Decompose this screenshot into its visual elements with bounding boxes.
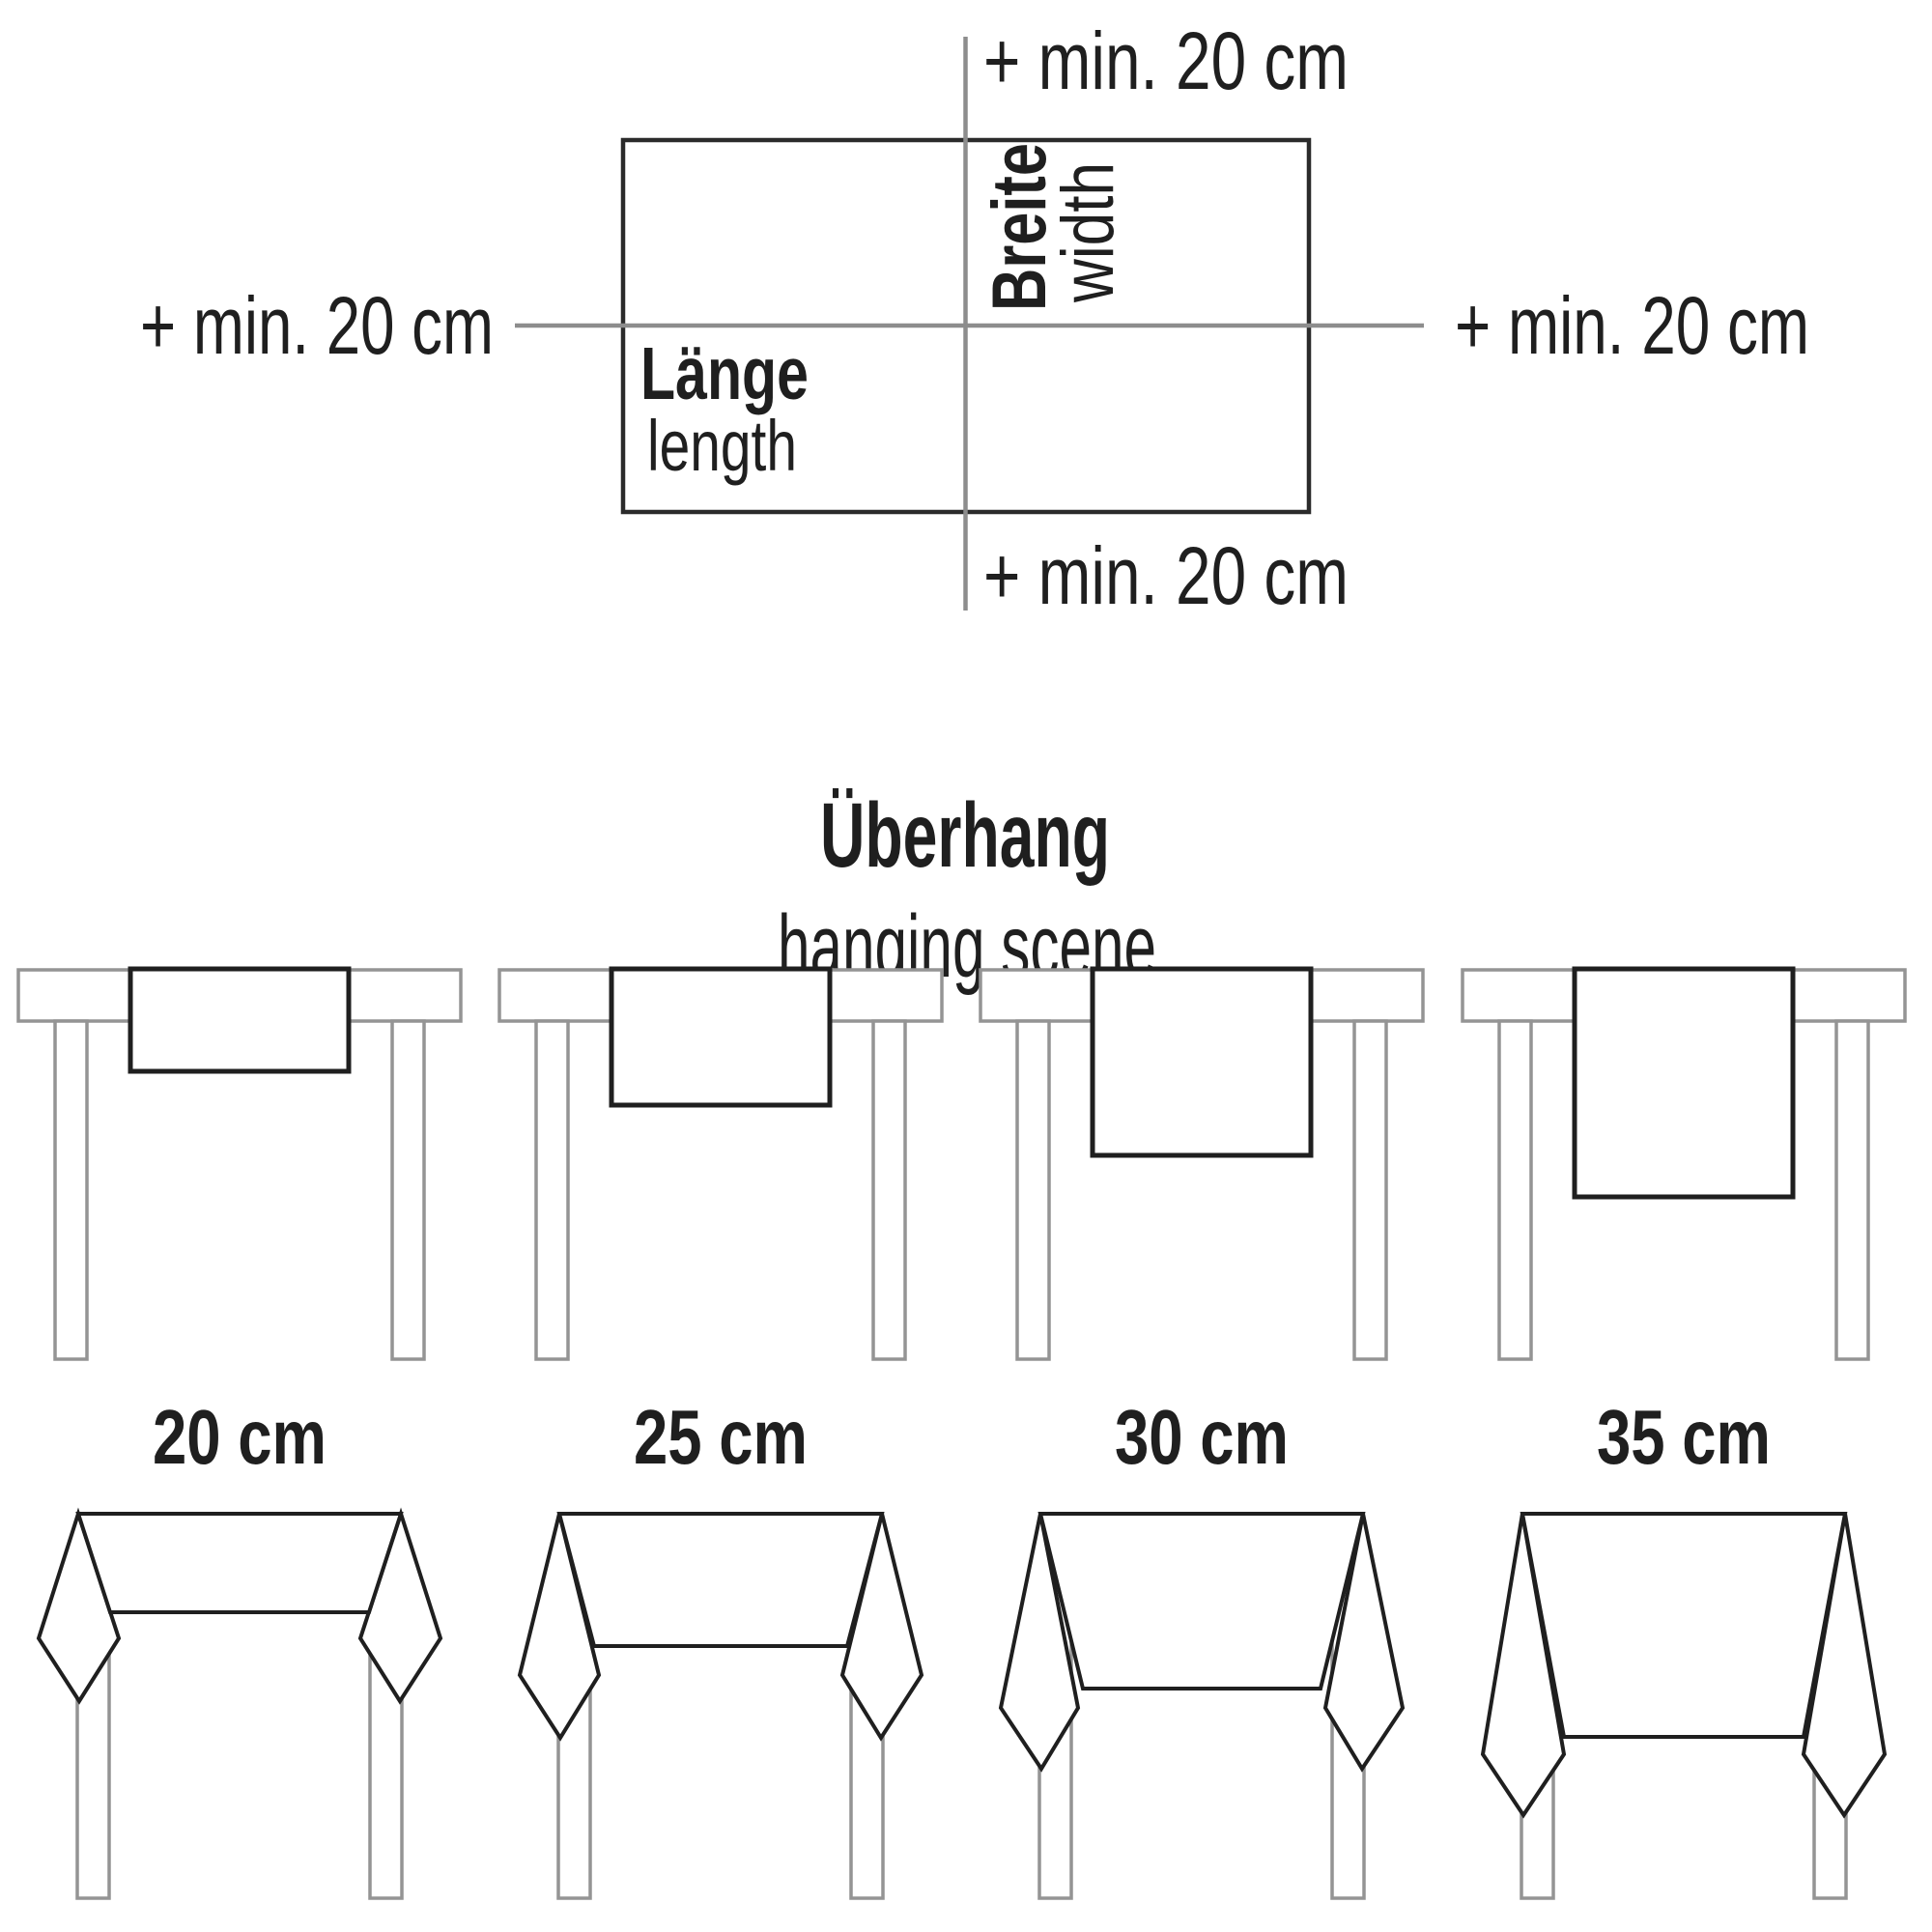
overhang-label-30cm: 30 cm [1115,1394,1289,1480]
cloth-table-20cm [39,1514,440,1898]
cloth-front-panel [559,1514,882,1646]
table-leg-left [536,1021,568,1359]
table-leg-right [873,1021,905,1359]
overhang-labels: 20 cm 25 cm 30 cm 35 cm [153,1394,1771,1480]
overhang-label-35cm: 35 cm [1597,1394,1771,1480]
margin-label-bottom: + min. 20 cm [983,530,1349,621]
table-runner [130,969,349,1071]
cloth-front-panel [1522,1514,1845,1737]
cloth-table-25cm [520,1514,922,1898]
table-leg-left [1499,1021,1531,1359]
overhang-section-title: Überhang hanging scene [778,784,1156,996]
cloth-front-panel [78,1514,401,1612]
table-leg-right [1836,1021,1868,1359]
length-label-de: Länge [640,332,809,415]
length-label-en: length [647,406,797,486]
margin-label-top: + min. 20 cm [983,15,1349,106]
dimension-diagram: + min. 20 cm + min. 20 cm + min. 20 cm +… [140,15,1809,621]
table-runner [1093,969,1311,1155]
runner-table-30cm [980,969,1423,1359]
runner-table-20cm [18,969,461,1359]
width-label-en: width [1047,162,1129,303]
cloth-table-30cm [1001,1514,1403,1898]
margin-label-left: + min. 20 cm [140,280,494,371]
cloth-front-panel [1040,1514,1363,1689]
table-leg-left [55,1021,87,1359]
runner-table-25cm [499,969,942,1359]
table-runner [1575,969,1793,1197]
tablecloth-measurement-diagram: + min. 20 cm + min. 20 cm + min. 20 cm +… [0,0,1932,1932]
margin-label-right: + min. 20 cm [1455,280,1809,371]
table-runner [611,969,830,1105]
section-title-de: Überhang [820,784,1110,887]
overhang-label-25cm: 25 cm [634,1394,808,1480]
overhang-label-20cm: 20 cm [153,1394,327,1480]
table-leg-right [1354,1021,1386,1359]
runner-table-35cm [1463,969,1905,1359]
table-leg-right [392,1021,424,1359]
cloth-table-35cm [1483,1514,1885,1898]
table-leg-left [1017,1021,1049,1359]
